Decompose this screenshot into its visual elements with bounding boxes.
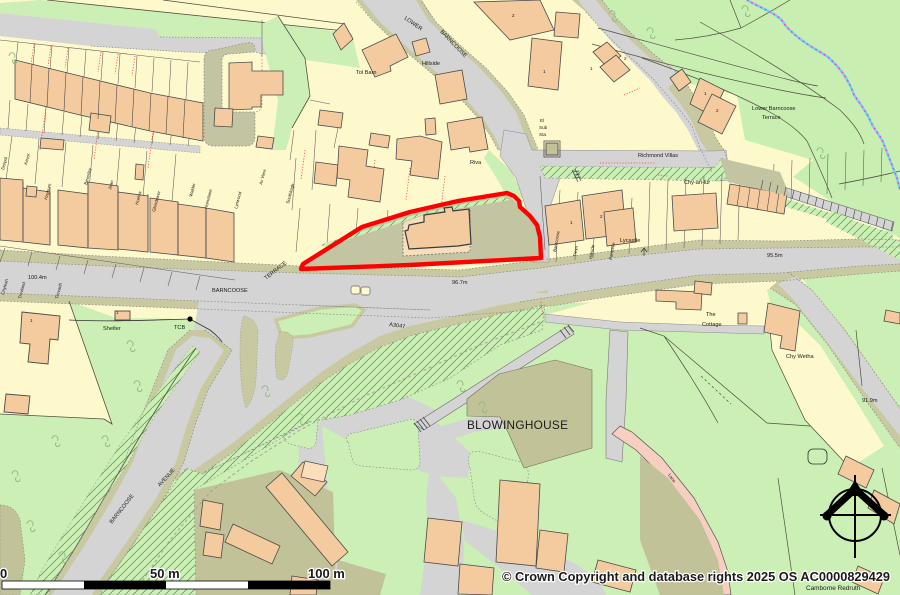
svg-text:El: El — [540, 118, 544, 123]
svg-text:96.7m: 96.7m — [452, 280, 468, 286]
svg-text:95.5m: 95.5m — [767, 253, 783, 259]
svg-text:50 m: 50 m — [150, 566, 180, 581]
svg-text:1: 1 — [543, 69, 546, 74]
svg-text:2: 2 — [624, 56, 627, 61]
svg-text:1: 1 — [116, 310, 119, 315]
svg-text:Chy Wetha: Chy Wetha — [786, 354, 814, 360]
svg-text:Chy-an-lur: Chy-an-lur — [684, 180, 710, 186]
svg-text:Shelter: Shelter — [103, 326, 121, 332]
svg-text:1: 1 — [30, 318, 33, 323]
svg-text:Tol Barn: Tol Barn — [356, 70, 377, 76]
svg-text:BARNCOOSE: BARNCOOSE — [212, 288, 248, 294]
svg-text:1: 1 — [570, 220, 573, 225]
svg-text:2: 2 — [512, 13, 515, 18]
svg-text:1: 1 — [590, 66, 593, 71]
svg-text:© Crown Copyright and database: © Crown Copyright and database rights 20… — [502, 569, 890, 584]
svg-text:2: 2 — [600, 214, 603, 219]
svg-text:Riva: Riva — [470, 160, 482, 166]
svg-text:TCB: TCB — [174, 325, 185, 331]
svg-text:Richmond Villas: Richmond Villas — [638, 153, 678, 159]
svg-text:Sub: Sub — [539, 125, 548, 130]
svg-text:The: The — [706, 312, 716, 318]
svg-text:100.4m: 100.4m — [28, 275, 47, 281]
svg-text:2: 2 — [716, 108, 719, 113]
svg-text:100 m: 100 m — [308, 566, 345, 581]
svg-text:91.9m: 91.9m — [862, 398, 878, 404]
svg-text:BLOWINGHOUSE: BLOWINGHOUSE — [467, 418, 568, 432]
svg-text:Lycastle: Lycastle — [620, 238, 640, 244]
svg-text:Camborne Redruth: Camborne Redruth — [806, 585, 861, 592]
svg-text:Terrace: Terrace — [762, 115, 781, 121]
svg-text:Cottage: Cottage — [702, 322, 722, 328]
svg-text:1: 1 — [704, 91, 707, 96]
svg-text:Sta: Sta — [539, 132, 546, 137]
svg-text:0: 0 — [0, 566, 7, 581]
svg-text:Lower Barncoose: Lower Barncoose — [752, 106, 796, 112]
svg-text:Hillside: Hillside — [422, 61, 440, 67]
